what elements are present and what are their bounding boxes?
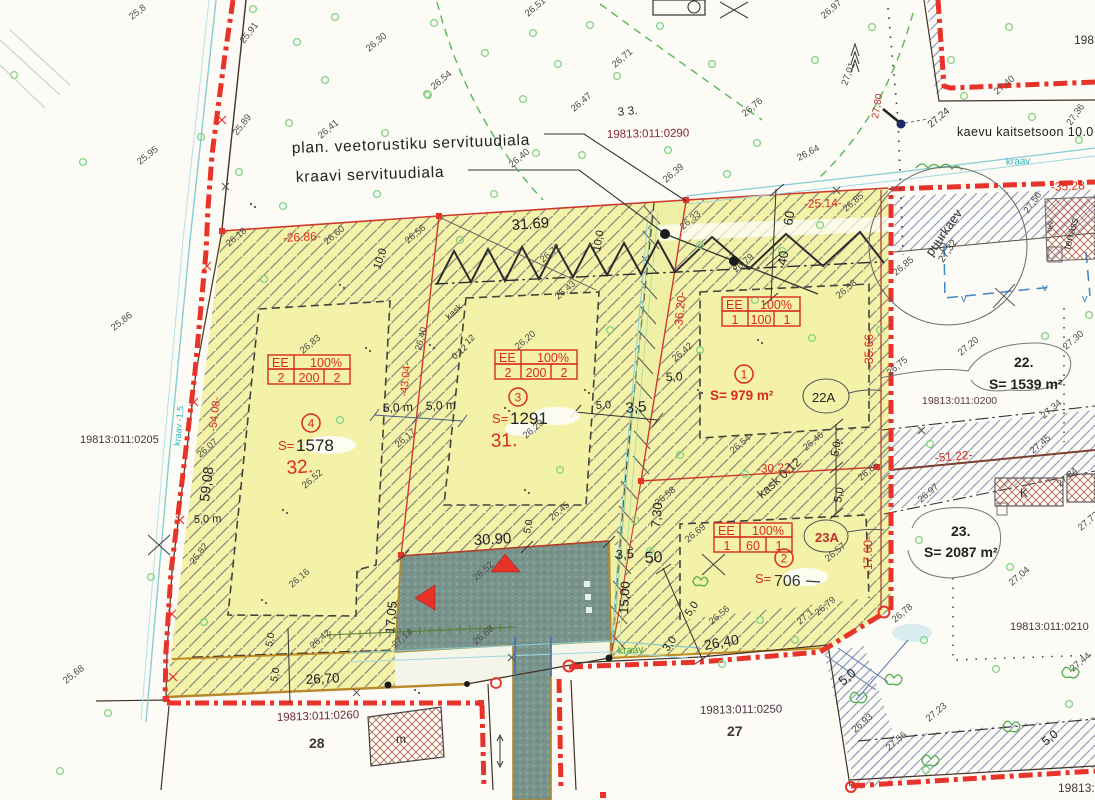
svg-text:4: 4	[308, 417, 315, 431]
svg-text:19813:011:0290: 19813:011:0290	[607, 128, 689, 141]
svg-text:50: 50	[644, 549, 663, 567]
svg-text:100: 100	[751, 313, 772, 327]
svg-text:19813:0: 19813:0	[1058, 781, 1095, 795]
svg-text:19813:011:0210: 19813:011:0210	[1010, 621, 1089, 633]
svg-text:3,5: 3,5	[625, 398, 647, 417]
svg-text:EE: EE	[272, 356, 289, 370]
svg-text:100%: 100%	[310, 356, 342, 370]
svg-text:23.: 23.	[951, 523, 970, 539]
svg-text:S=: S=	[278, 438, 294, 453]
svg-text:60: 60	[780, 210, 797, 227]
svg-text:K: K	[1020, 486, 1028, 500]
svg-text:-25.14-: -25.14-	[804, 196, 842, 211]
svg-text:19813:0: 19813:0	[1074, 33, 1095, 47]
svg-text:3,5: 3,5	[615, 546, 634, 562]
svg-text:200: 200	[526, 366, 547, 380]
svg-text:19813:011:0200: 19813:011:0200	[922, 395, 997, 407]
svg-text:EE: EE	[718, 524, 735, 538]
svg-text:2: 2	[781, 552, 788, 566]
svg-text:5,0: 5,0	[666, 369, 683, 384]
svg-text:v: v	[961, 293, 967, 305]
svg-text:1: 1	[784, 313, 791, 327]
svg-text:1: 1	[741, 368, 748, 382]
svg-text:-17.60-: -17.60-	[861, 536, 875, 574]
svg-text:v: v	[1082, 293, 1088, 305]
svg-text:EE: EE	[726, 298, 743, 312]
svg-text:-35.66-: -35.66-	[862, 330, 876, 368]
svg-text:1: 1	[724, 539, 731, 553]
svg-text:2: 2	[334, 371, 341, 385]
svg-text:28: 28	[309, 735, 325, 751]
svg-text:2: 2	[561, 366, 568, 380]
svg-text:5,0: 5,0	[596, 399, 612, 412]
svg-text:v: v	[1042, 282, 1048, 294]
svg-text:3 3.: 3 3.	[617, 103, 638, 119]
svg-text:2: 2	[278, 371, 285, 385]
svg-text:27: 27	[727, 723, 743, 739]
svg-text:5,0 m: 5,0 m	[426, 398, 456, 413]
svg-text:100%: 100%	[760, 298, 792, 312]
svg-text:S=: S=	[755, 571, 771, 586]
svg-text:5,0 m: 5,0 m	[194, 513, 222, 526]
svg-text:2: 2	[505, 366, 512, 380]
svg-text:17,05: 17,05	[382, 601, 400, 635]
svg-text:19813:011:0250: 19813:011:0250	[700, 704, 782, 717]
svg-text:S= 979 m²: S= 979 m²	[710, 388, 774, 403]
svg-text:m: m	[396, 732, 406, 746]
svg-text:22.: 22.	[1014, 354, 1033, 370]
svg-text:100%: 100%	[537, 351, 569, 365]
svg-text:31.: 31.	[490, 430, 517, 452]
svg-text:EE: EE	[499, 351, 516, 365]
svg-text:1: 1	[732, 313, 739, 327]
svg-text:-35.28: -35.28	[1050, 178, 1085, 194]
svg-text:706: 706	[774, 573, 801, 590]
svg-text:200: 200	[299, 371, 320, 385]
svg-text:40: 40	[774, 250, 791, 267]
svg-text:100%: 100%	[752, 524, 784, 538]
svg-text:S= 2087 m²: S= 2087 m²	[924, 544, 998, 560]
svg-text:15,00: 15,00	[616, 581, 633, 614]
svg-text:5,0 m: 5,0 m	[383, 400, 413, 415]
svg-text:60: 60	[746, 539, 760, 553]
svg-text:31.69: 31.69	[511, 214, 550, 234]
svg-text:1578: 1578	[296, 436, 334, 455]
svg-text:23A: 23A	[815, 530, 839, 545]
svg-text:22A: 22A	[812, 390, 835, 405]
svg-text:26,70: 26,70	[305, 670, 340, 687]
svg-text:kraav: kraav	[1006, 156, 1031, 168]
svg-text:S=: S=	[492, 411, 508, 426]
svg-text:30.90: 30.90	[473, 530, 511, 549]
svg-text:3: 3	[515, 391, 522, 405]
svg-text:kraav: kraav	[618, 644, 645, 657]
svg-text:19813:011:0205: 19813:011:0205	[80, 434, 159, 446]
svg-text:-26.86-: -26.86-	[282, 229, 321, 245]
svg-text:S= 1539 m²: S= 1539 m²	[989, 376, 1063, 392]
